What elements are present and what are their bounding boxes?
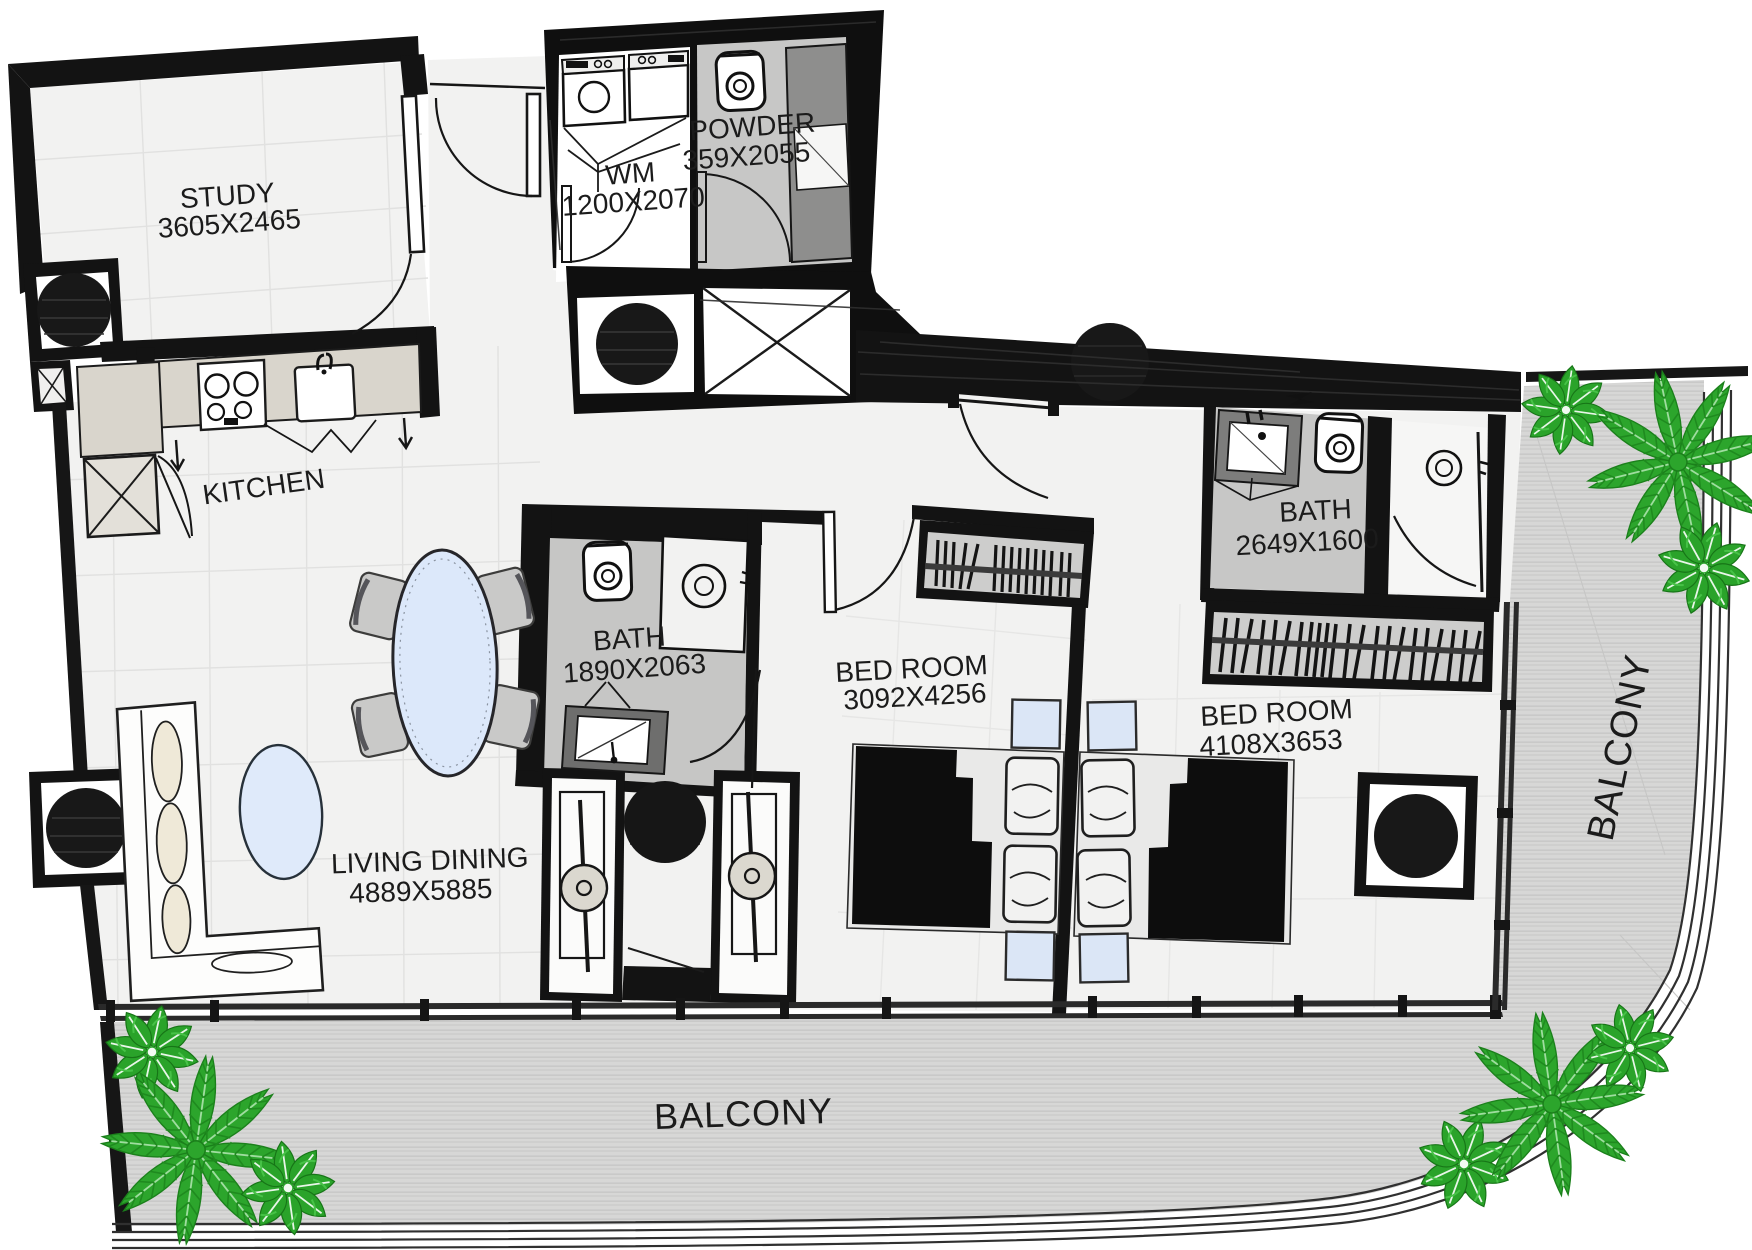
svg-text:BALCONY: BALCONY [653, 1090, 833, 1137]
svg-text:BATH: BATH [1278, 493, 1352, 528]
svg-text:4889X5885: 4889X5885 [349, 873, 493, 909]
